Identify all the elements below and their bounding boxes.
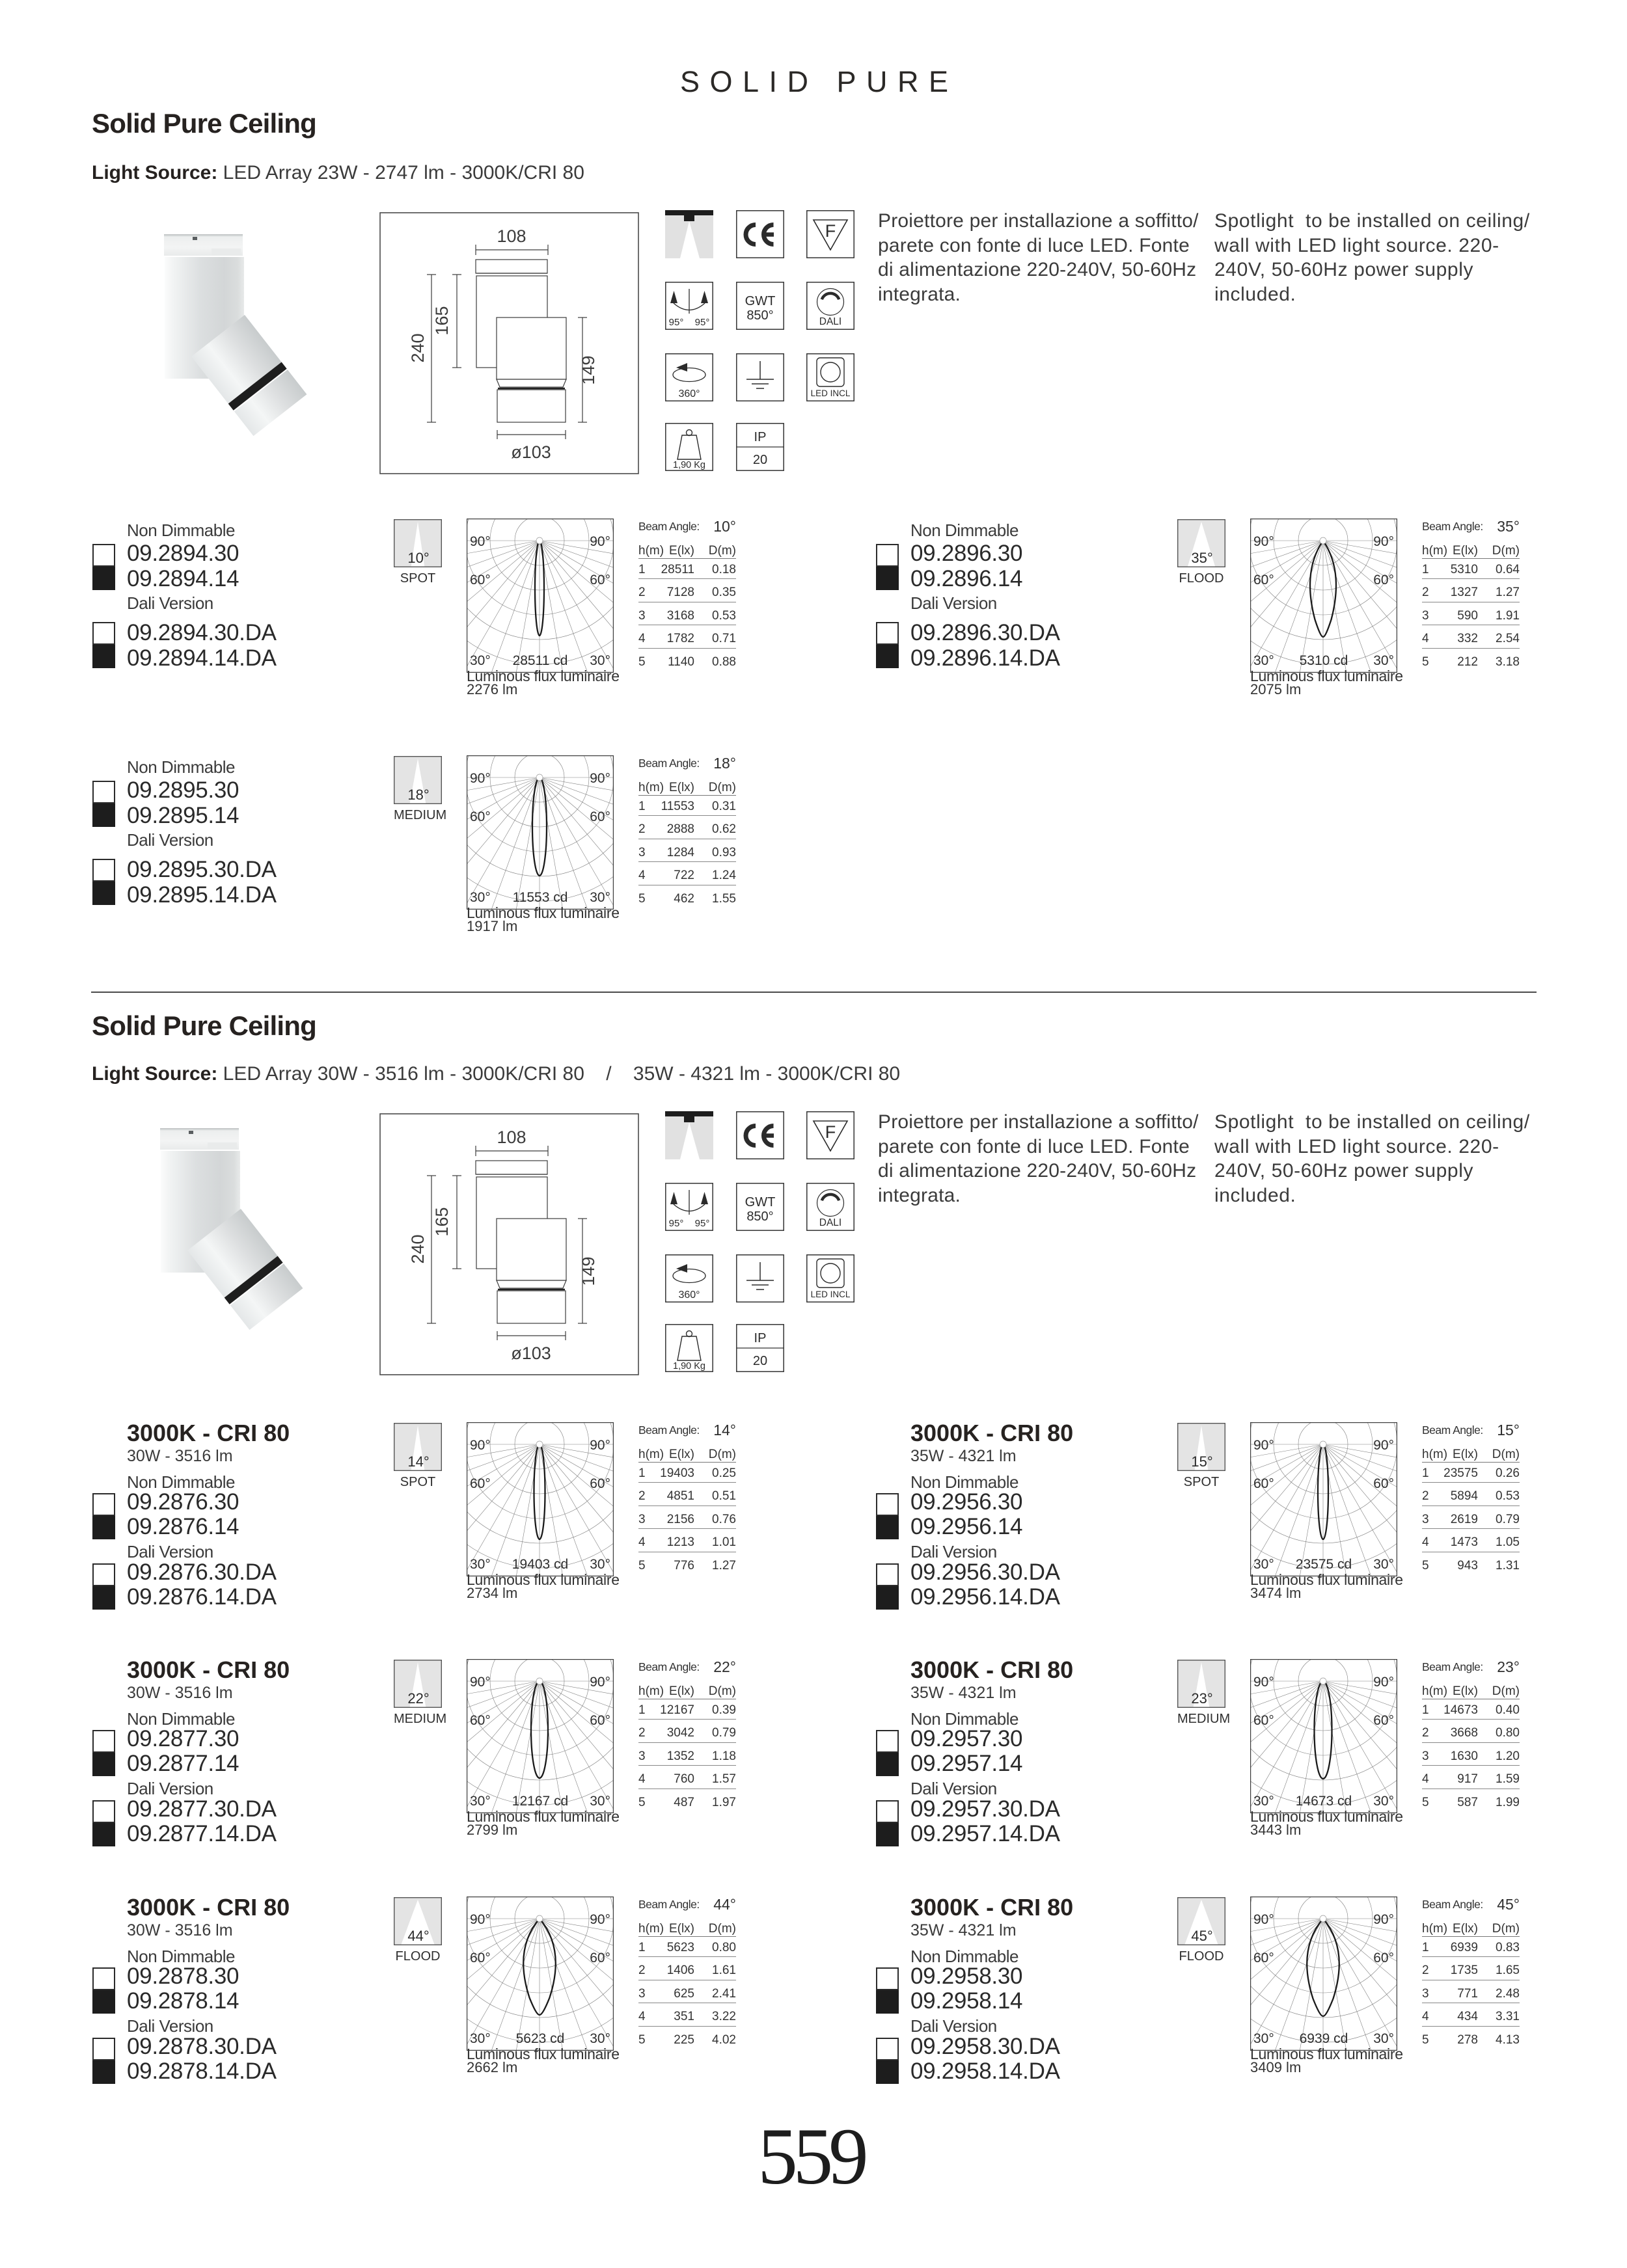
svg-text:ø103: ø103 — [511, 442, 551, 462]
svg-text:60°: 60° — [470, 1951, 491, 1965]
svg-text:IP: IP — [754, 1331, 767, 1345]
svg-text:30°: 30° — [1253, 2031, 1274, 2046]
svg-text:30°: 30° — [1373, 2031, 1394, 2046]
svg-text:30°: 30° — [470, 2031, 491, 2046]
svg-text:90°: 90° — [590, 1912, 610, 1927]
svg-text:165: 165 — [432, 306, 452, 335]
svg-text:20: 20 — [753, 453, 767, 467]
svg-text:60°: 60° — [1253, 1713, 1274, 1728]
svg-text:30°: 30° — [470, 1557, 491, 1572]
svg-text:44°: 44° — [407, 1928, 429, 1944]
svg-text:95°: 95° — [669, 317, 684, 328]
svg-text:90°: 90° — [1253, 1912, 1274, 1927]
svg-text:60°: 60° — [1253, 573, 1274, 587]
svg-text:90°: 90° — [470, 534, 491, 549]
svg-text:60°: 60° — [470, 809, 491, 824]
svg-text:90°: 90° — [1373, 1675, 1394, 1690]
svg-text:30°: 30° — [590, 890, 610, 905]
svg-text:95°: 95° — [669, 1218, 684, 1229]
svg-text:90°: 90° — [470, 1912, 491, 1927]
svg-text:90°: 90° — [1253, 534, 1274, 549]
svg-text:30°: 30° — [470, 653, 491, 668]
svg-text:60°: 60° — [1373, 1476, 1394, 1491]
svg-text:90°: 90° — [1373, 1438, 1394, 1453]
svg-text:60°: 60° — [590, 1713, 610, 1728]
svg-text:IP: IP — [754, 430, 767, 444]
svg-text:30°: 30° — [1373, 1557, 1394, 1572]
svg-text:90°: 90° — [590, 771, 610, 786]
svg-text:6939 cd: 6939 cd — [1300, 2031, 1348, 2046]
svg-text:5623 cd: 5623 cd — [516, 2031, 565, 2046]
svg-text:60°: 60° — [1253, 1476, 1274, 1491]
svg-text:60°: 60° — [590, 573, 610, 587]
svg-text:5310 cd: 5310 cd — [1300, 653, 1348, 668]
svg-text:30°: 30° — [470, 1794, 491, 1809]
svg-text:LED INCL: LED INCL — [811, 388, 851, 398]
svg-text:149: 149 — [579, 355, 598, 385]
svg-text:30°: 30° — [590, 1794, 610, 1809]
svg-text:28511 cd: 28511 cd — [513, 653, 568, 668]
svg-text:LED INCL: LED INCL — [811, 1289, 851, 1299]
svg-text:ø103: ø103 — [511, 1343, 551, 1363]
svg-text:60°: 60° — [1373, 1951, 1394, 1965]
svg-text:14°: 14° — [407, 1453, 429, 1470]
svg-text:18°: 18° — [407, 787, 429, 803]
svg-text:19403 cd: 19403 cd — [512, 1557, 568, 1572]
svg-text:20: 20 — [753, 1354, 767, 1368]
svg-text:90°: 90° — [1253, 1675, 1274, 1690]
svg-text:108: 108 — [497, 226, 526, 246]
svg-text:60°: 60° — [590, 809, 610, 824]
svg-text:30°: 30° — [590, 1557, 610, 1572]
svg-text:30°: 30° — [1253, 653, 1274, 668]
svg-text:23°: 23° — [1191, 1690, 1212, 1707]
svg-text:23575 cd: 23575 cd — [1296, 1557, 1352, 1572]
svg-text:60°: 60° — [470, 1713, 491, 1728]
svg-text:90°: 90° — [470, 1675, 491, 1690]
svg-text:108: 108 — [497, 1127, 526, 1147]
svg-text:360°: 360° — [678, 1289, 700, 1301]
svg-text:30°: 30° — [470, 890, 491, 905]
svg-text:22°: 22° — [407, 1690, 429, 1707]
svg-text:30°: 30° — [1253, 1557, 1274, 1572]
svg-text:95°: 95° — [695, 1218, 710, 1229]
svg-text:1,90 Kg: 1,90 Kg — [673, 1361, 705, 1371]
svg-text:30°: 30° — [1373, 1794, 1394, 1809]
svg-text:1,90 Kg: 1,90 Kg — [673, 460, 705, 470]
svg-text:240: 240 — [408, 333, 428, 362]
svg-text:60°: 60° — [470, 1476, 491, 1491]
svg-text:90°: 90° — [1373, 534, 1394, 549]
svg-text:90°: 90° — [470, 1438, 491, 1453]
svg-text:60°: 60° — [470, 573, 491, 587]
svg-text:90°: 90° — [590, 534, 610, 549]
svg-text:30°: 30° — [1253, 1794, 1274, 1809]
svg-text:90°: 90° — [470, 771, 491, 786]
svg-text:90°: 90° — [1253, 1438, 1274, 1453]
svg-text:60°: 60° — [1253, 1951, 1274, 1965]
svg-text:12167 cd: 12167 cd — [512, 1794, 568, 1809]
svg-text:35°: 35° — [1191, 550, 1212, 566]
svg-text:30°: 30° — [590, 2031, 610, 2046]
svg-text:850°: 850° — [746, 308, 773, 323]
svg-text:F: F — [825, 1122, 836, 1142]
svg-text:850°: 850° — [746, 1209, 773, 1224]
svg-text:DALI: DALI — [819, 1217, 841, 1228]
svg-text:GWT: GWT — [745, 294, 776, 308]
svg-text:60°: 60° — [1373, 1713, 1394, 1728]
svg-text:90°: 90° — [590, 1438, 610, 1453]
svg-text:240: 240 — [408, 1234, 428, 1263]
svg-text:14673 cd: 14673 cd — [1296, 1794, 1352, 1809]
svg-text:90°: 90° — [590, 1675, 610, 1690]
svg-text:F: F — [825, 221, 836, 241]
svg-text:90°: 90° — [1373, 1912, 1394, 1927]
svg-text:60°: 60° — [1373, 573, 1394, 587]
svg-text:30°: 30° — [1373, 653, 1394, 668]
svg-text:60°: 60° — [590, 1951, 610, 1965]
svg-text:45°: 45° — [1191, 1928, 1212, 1944]
svg-text:DALI: DALI — [819, 316, 841, 327]
svg-text:149: 149 — [579, 1256, 598, 1286]
svg-text:360°: 360° — [678, 388, 700, 399]
svg-text:10°: 10° — [407, 550, 429, 566]
svg-text:60°: 60° — [590, 1476, 610, 1491]
svg-text:30°: 30° — [590, 653, 610, 668]
svg-text:95°: 95° — [695, 317, 710, 328]
svg-text:165: 165 — [432, 1207, 452, 1236]
svg-text:15°: 15° — [1191, 1453, 1212, 1470]
svg-text:GWT: GWT — [745, 1195, 776, 1209]
svg-text:11553 cd: 11553 cd — [513, 890, 568, 905]
